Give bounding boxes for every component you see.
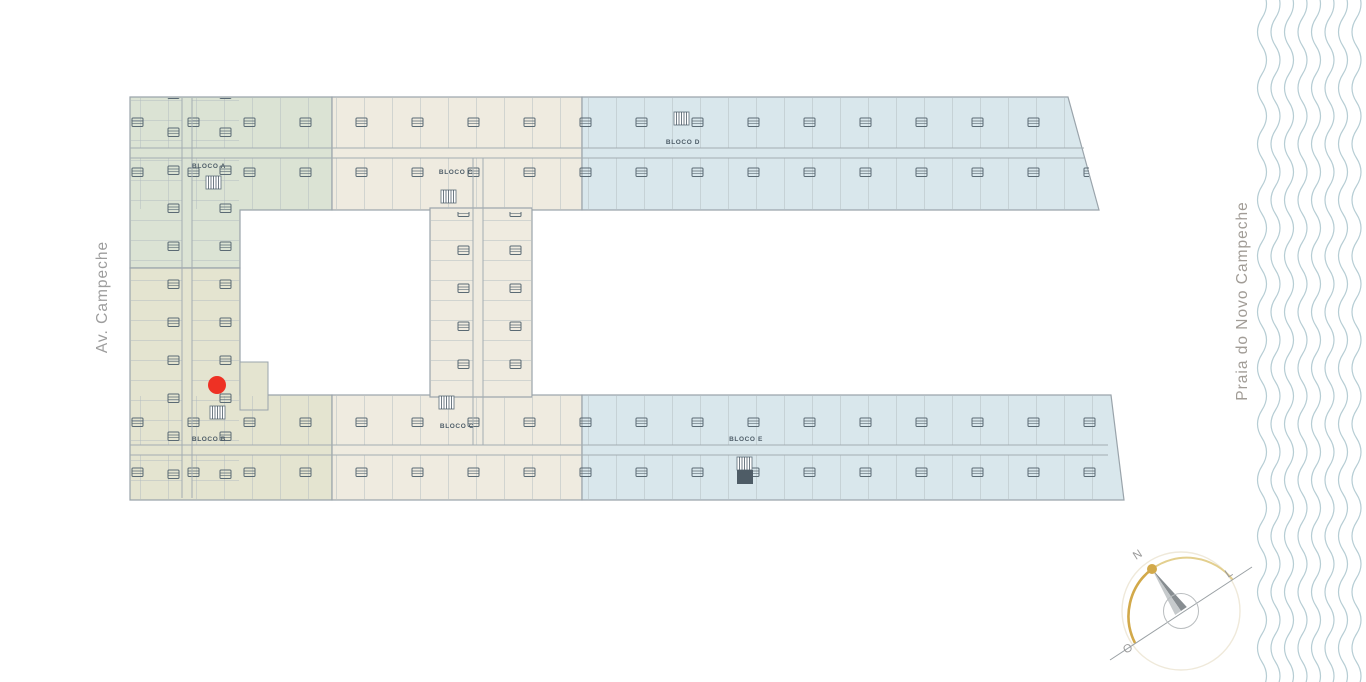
- stairs-icon-b: [210, 406, 225, 419]
- bloco-b-label: BLOCO B: [192, 436, 226, 443]
- bloco-d-label: BLOCO D: [666, 139, 700, 146]
- compass-needle-light: [1152, 569, 1181, 615]
- stairs-icon-c-top: [441, 190, 456, 203]
- compass-o: O: [1121, 642, 1135, 657]
- bloco-e-label: BLOCO E: [729, 436, 763, 443]
- compass-needle-dark: [1152, 569, 1187, 611]
- bloco-c-label-top: BLOCO C: [439, 169, 473, 176]
- compass-north-dot: [1147, 564, 1157, 574]
- compass-arc-gold: [1129, 569, 1152, 643]
- compass: N L O: [1090, 530, 1310, 682]
- location-marker[interactable]: [208, 376, 226, 394]
- stairs-icon-d: [674, 112, 689, 125]
- stairs-icon-a: [206, 176, 221, 189]
- bloco-c-label-bottom: BLOCO C: [440, 423, 474, 430]
- stairs-core-e: [737, 470, 753, 484]
- site-plan-canvas: Av. Campeche Praia do Novo Campeche: [0, 0, 1366, 682]
- bloco-a-label: BLOCO A: [192, 163, 226, 170]
- stairs-icon-e: [737, 457, 752, 470]
- stairs-icon-c-bottom: [439, 396, 454, 409]
- compass-n: N: [1131, 548, 1145, 563]
- compass-arc-pale: [1152, 558, 1233, 580]
